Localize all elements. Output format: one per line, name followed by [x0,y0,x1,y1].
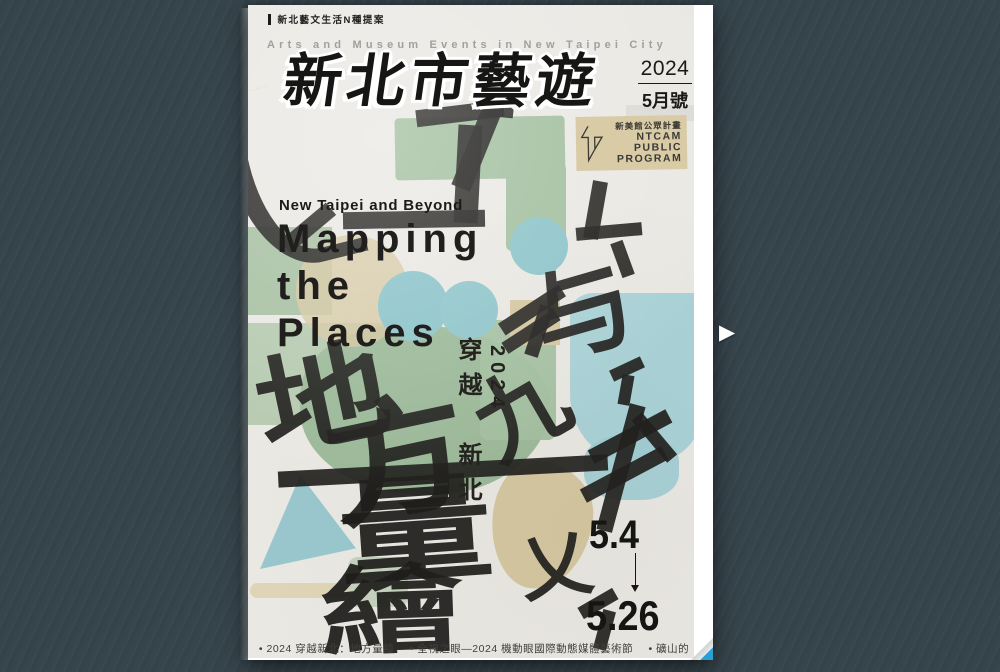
event-end-date: 5.26 [586,595,660,637]
event-start-date: 5.4 [589,515,639,555]
vertical-phrase: 穿越 新北 [451,337,483,587]
flipbook-viewer: 地 方 量 繪 与 九 乂 新北藝文生活N種提案 Arts and Museum… [0,0,1000,672]
zigzag-n-icon [580,124,605,164]
heading-line: the [277,263,483,310]
theme-heading: Mapping the Places [277,216,483,357]
slogan-text: 新北藝文生活N種提案 [278,12,385,26]
next-page-button[interactable]: ▶ [719,319,745,347]
footer-item: • 全視之眼—2024 機動眼國際動態媒體藝術節 [410,643,633,655]
masthead-slogan: 新北藝文生活N種提案 [268,12,385,26]
footer-item: • 2024 穿越新北：地方量繪 [259,643,394,655]
issue-box: 2024 5月號 [638,57,692,113]
issue-month: 5月號 [638,84,692,113]
magazine-title: 新北市藝遊 [280,53,603,111]
issue-year: 2024 [638,57,692,84]
heading-line: Mapping [277,216,483,263]
page-curl[interactable] [691,638,713,660]
art-character-fragment: 乂 [515,525,596,606]
down-arrow-icon [630,553,640,593]
magazine-cover-page[interactable]: 地 方 量 繪 与 九 乂 新北藝文生活N種提案 Arts and Museum… [248,5,713,660]
slogan-bar [268,14,271,25]
ntcam-program-badge: 新美館公眾計畫 NTCAM PUBLIC PROGRAM [576,115,688,171]
cover-footer: • 2024 穿越新北：地方量繪 • 全視之眼—2024 機動眼國際動態媒體藝術… [248,641,694,658]
vertical-theme-text: 2024 穿越 新北 [451,337,510,587]
program-line: PROGRAM [604,153,682,165]
vertical-year: 2024 [483,337,510,587]
page-stack-edge [240,8,248,660]
program-text: 新美館公眾計畫 NTCAM PUBLIC PROGRAM [604,119,683,165]
next-arrow-icon: ▶ [719,321,735,344]
theme-subtitle: New Taipei and Beyond [279,197,463,214]
cover-artwork: 地 方 量 繪 与 九 乂 新北藝文生活N種提案 Arts and Museum… [248,5,694,658]
